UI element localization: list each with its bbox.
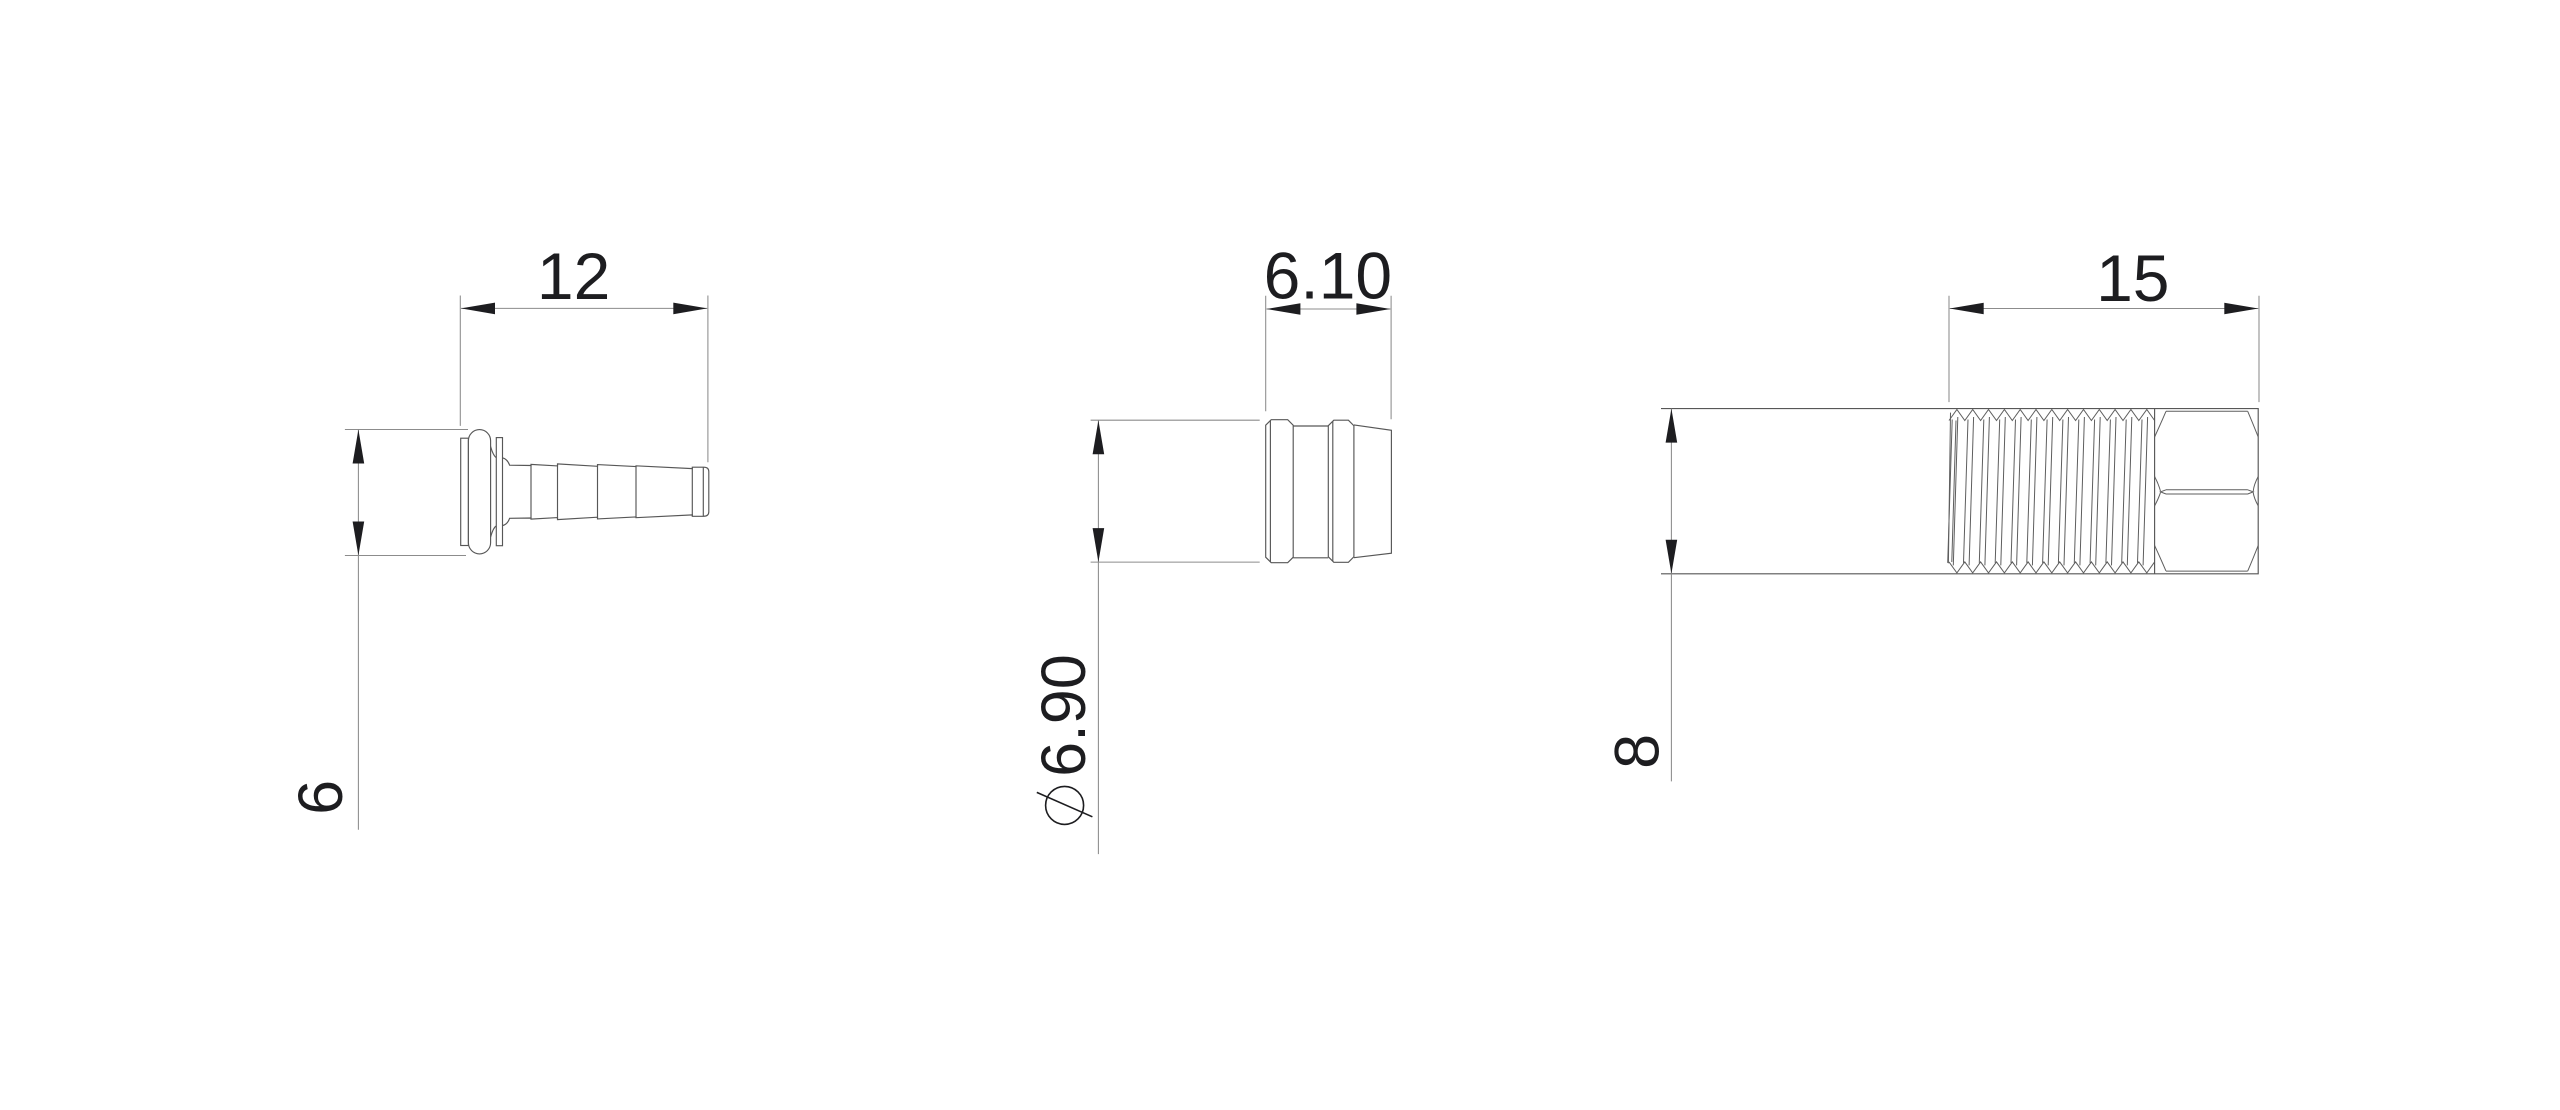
svg-text:8: 8 — [1602, 734, 1672, 769]
svg-text:6.10: 6.10 — [1264, 239, 1392, 313]
svg-text:12: 12 — [537, 239, 610, 313]
svg-text:6.90: 6.90 — [1029, 654, 1099, 777]
svg-text:6: 6 — [286, 780, 356, 815]
svg-text:15: 15 — [2096, 241, 2169, 315]
